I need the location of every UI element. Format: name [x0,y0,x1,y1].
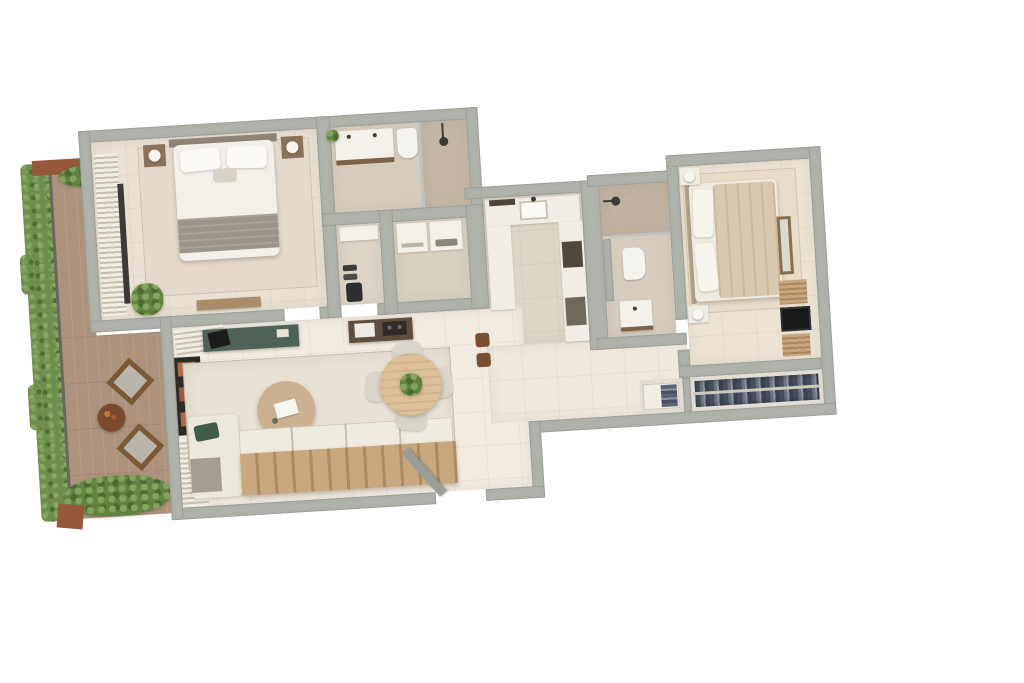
kitchen-oven [562,241,584,268]
floor-plan-render [0,0,1024,683]
terrace-hedge-tuft [19,254,35,295]
bathroom2-shower-floor [599,182,670,236]
bedroom1-nightstand-left [143,144,166,167]
kitchenette-stool [475,333,490,348]
bathroom2-vanity [619,300,653,332]
hallway-shoes [343,274,357,281]
bed-duvet [712,181,781,299]
hallway-shoes [343,265,357,272]
bed-pillow [693,189,713,237]
living-console-deco [276,329,288,338]
bathroom1-vanity [334,128,394,161]
kitchenette-counter [348,317,413,343]
bed-pillow [227,146,267,168]
kitchenette-stool [476,353,491,368]
bathroom1-toilet [396,128,418,159]
bedroom2-tv [780,306,811,332]
terrace-planter-edge-bottom [57,503,85,529]
wall-living-bottom-b [486,485,546,501]
bathroom2-toilet [622,247,646,280]
bedroom2-nightstand-bottom [688,305,709,323]
bedroom2-slat-dresser [778,279,807,305]
wall-bedroom2-left-stub [677,349,690,366]
bathroom1-vanity-plant [326,129,339,142]
apartment-plan [18,86,847,549]
laundry-washer [396,222,428,253]
hallway-cabinet [339,225,378,241]
sofa-grey-throw [190,457,222,493]
bedroom2-slat-unit [782,333,811,357]
laundry-dryer [429,220,463,251]
bathroom1-shower-floor [420,120,471,208]
kitchen-counter-left [487,225,516,310]
closet-small-clothes [661,384,678,407]
bed-foot-throw [178,213,280,253]
bedroom2-bed [684,177,785,305]
hallway-bag [346,282,363,302]
terrace-hedge-tuft [27,384,44,431]
bedroom2-nightstand-top [679,167,700,185]
kitchen-sink [519,200,548,221]
bed-cushion [213,168,238,183]
bedroom1-bed [169,133,284,265]
kitchen-dishwasher [565,297,587,326]
bedroom1-nightstand-right [281,136,304,159]
